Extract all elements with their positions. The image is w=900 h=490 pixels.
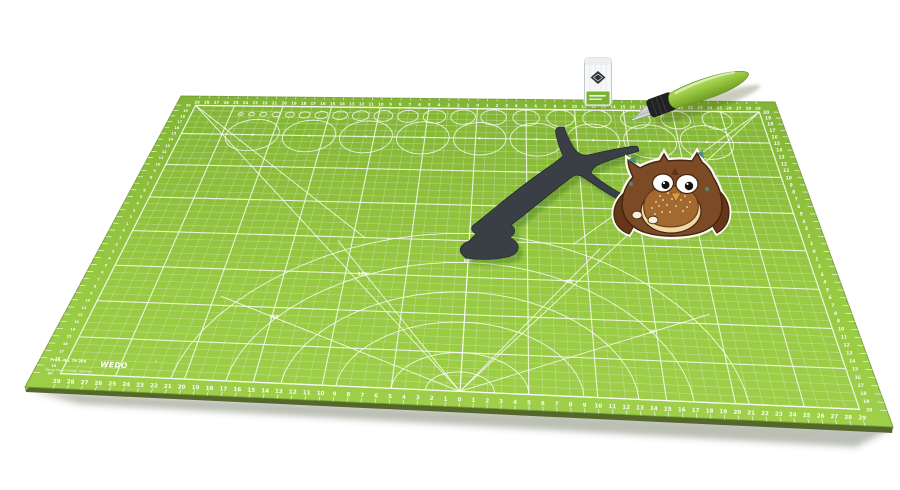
ruler-number: 24	[243, 100, 249, 105]
ruler-number: 14	[650, 406, 658, 412]
owl-foot-left	[632, 211, 642, 219]
owl-pupil-left	[662, 181, 670, 189]
ruler-number: 19	[765, 116, 771, 122]
ruler-number: 15	[774, 141, 780, 147]
ruler-number: 3	[499, 399, 503, 405]
product-photo: 2929282827272626252524242323222221212020…	[0, 0, 900, 490]
ruler-number: 20	[178, 385, 186, 391]
ruler-number: 2	[818, 264, 821, 270]
ruler-number: 1	[486, 103, 489, 108]
scene-canvas: 2929282827272626252524242323222221212020…	[0, 0, 900, 490]
ruler-number: 18	[860, 391, 866, 397]
ruler-number: 16	[855, 375, 861, 381]
ruler-number: 3	[447, 102, 450, 107]
ruler-number: 16	[771, 134, 777, 140]
ruler-number: 12	[781, 161, 787, 167]
ruler-number: 12	[843, 343, 849, 349]
ruler-number: 22	[262, 100, 268, 105]
ruler-number: 2	[457, 102, 460, 107]
ruler-number: 9	[332, 392, 336, 398]
ruler-number: 19	[863, 399, 869, 405]
ruler-number: 15	[171, 132, 176, 136]
ruler-number: 19	[291, 101, 297, 106]
ruler-number: 13	[778, 154, 784, 160]
ruler-number: 18	[205, 386, 213, 392]
ruler-number: 3	[821, 272, 824, 278]
ruler-number: 7	[795, 197, 798, 203]
ruler-number: 1	[467, 103, 470, 108]
ruler-number: 28	[67, 379, 75, 385]
ruler-number: 15	[664, 407, 672, 413]
ruler-number: 8	[792, 190, 795, 196]
ruler-number: 19	[719, 409, 727, 415]
ruler-number: 13	[636, 405, 644, 411]
ruler-number: 5	[388, 394, 392, 400]
ruler-number: 18	[301, 101, 307, 106]
ruler-number: 11	[841, 335, 847, 341]
ruler-number: 10	[572, 104, 578, 109]
ruler-number: 6	[374, 393, 378, 399]
ruler-number: 6	[797, 204, 800, 210]
ruler-number: 1	[810, 241, 813, 247]
ruler-number: 28	[204, 100, 210, 105]
ruler-number: 23	[136, 383, 144, 389]
ruler-number: 7	[544, 103, 547, 108]
ruler-number: 27	[830, 414, 838, 420]
ruler-number: 11	[303, 390, 311, 396]
ruler-number: 10	[317, 391, 325, 397]
ruler-number: 0	[457, 397, 461, 403]
ruler-number: 12	[622, 405, 630, 411]
ruler-number: 5	[428, 102, 431, 107]
ruler-number: 20	[763, 110, 769, 116]
angle-label: 150°	[269, 315, 280, 321]
ruler-number: 4	[515, 103, 518, 108]
ruler-number: 0	[476, 103, 479, 108]
ruler-number: 20	[186, 104, 191, 108]
ruler-number: 18	[767, 122, 773, 128]
ruler-number: 15	[330, 101, 336, 106]
ruler-number: 18	[705, 409, 713, 415]
ruler-number: 17	[310, 101, 316, 106]
ruler-number: 13	[275, 389, 283, 395]
angle-label: 120°	[358, 272, 369, 278]
ruler-number: 17	[769, 128, 775, 134]
ruler-number: 14	[261, 388, 269, 394]
owl-foot-right	[648, 216, 658, 224]
ruler-number: 20	[48, 371, 53, 375]
ruler-number: 3	[416, 395, 420, 401]
ruler-number: 16	[174, 126, 179, 130]
ruler-number: 12	[162, 150, 167, 154]
ruler-number: 14	[168, 138, 173, 142]
ruler-number: 5	[527, 400, 531, 406]
ruler-number: 29	[858, 415, 866, 421]
ruler-number: 16	[678, 407, 686, 413]
ruler-number: 2	[430, 396, 434, 402]
ruler-number: 21	[272, 100, 278, 105]
blade-case-label-line2	[589, 99, 602, 100]
ruler-number: 21	[747, 410, 755, 416]
ruler-number: 19	[192, 385, 200, 391]
ruler-number: 5	[525, 103, 528, 108]
ruler-number: 7	[360, 393, 364, 399]
ruler-number: 4	[438, 102, 441, 107]
ruler-number: 8	[399, 102, 402, 107]
ruler-number: 10	[155, 163, 160, 167]
ruler-number: 25	[233, 100, 239, 105]
ruler-number: 29	[755, 106, 761, 111]
ruler-number: 27	[736, 106, 742, 111]
ruler-number: 9	[790, 182, 793, 188]
cutting-mat: 2929282827272626252524242323222221212020…	[25, 96, 893, 447]
ruler-number: 9	[837, 319, 840, 325]
ruler-number: 13	[74, 320, 79, 324]
ruler-number: 14	[849, 359, 855, 365]
ruler-number: 1	[471, 398, 475, 404]
ruler-number: 4	[402, 395, 406, 401]
blade-case-cap	[585, 58, 612, 65]
ruler-number: 12	[78, 313, 83, 317]
ruler-number: 16	[233, 387, 241, 393]
ruler-number: 11	[368, 101, 374, 106]
ruler-number: 19	[183, 109, 188, 113]
ruler-number: 8	[834, 311, 837, 317]
ruler-number: 10	[838, 327, 844, 333]
ruler-number: 14	[70, 327, 75, 331]
ruler-number: 11	[608, 404, 616, 410]
ruler-number: 7	[409, 102, 412, 107]
ruler-number: 17	[219, 386, 227, 392]
owl-eye-glint-right	[686, 183, 688, 185]
ruler-number: 16	[630, 104, 636, 109]
angle-label: 30°	[649, 329, 657, 335]
blade-case-label-line1	[589, 95, 606, 97]
ruler-number: 29	[194, 100, 200, 105]
ruler-number: 11	[783, 168, 789, 174]
ruler-number: 15	[67, 335, 72, 339]
ruler-number: 14	[339, 101, 345, 106]
owl-pupil-right	[685, 182, 693, 190]
ruler-number: 17	[857, 383, 863, 389]
ruler-number: 1	[815, 256, 818, 262]
ruler-number: 6	[534, 103, 537, 108]
ruler-number: 20	[733, 410, 741, 416]
ruler-number: 20	[866, 407, 872, 413]
ruler-number: 0	[813, 249, 816, 255]
ruler-number: 23	[775, 412, 783, 418]
ruler-number: 10	[786, 175, 792, 181]
ruler-number: 11	[81, 306, 86, 310]
owl-cheek-accent-right	[705, 187, 709, 191]
owl-eye-glint-left	[663, 182, 665, 184]
ruler-number: 10	[594, 403, 602, 409]
ruler-number: 29	[53, 379, 61, 385]
ruler-number: 20	[281, 100, 287, 105]
ruler-number: 26	[94, 381, 102, 387]
ruler-number: 27	[80, 380, 88, 386]
ruler-number: 17	[177, 120, 182, 124]
ruler-number: 21	[164, 384, 172, 390]
ruler-number: 15	[247, 388, 255, 394]
ruler-number: 13	[846, 351, 852, 357]
ruler-number: 18	[180, 114, 185, 118]
mat-brand-logo: WEDO	[100, 360, 128, 370]
blade-case	[584, 58, 612, 110]
ruler-number: 26	[223, 100, 229, 105]
ruler-number: 28	[746, 106, 752, 111]
ruler-number: 24	[122, 382, 130, 388]
ruler-number: 8	[568, 402, 572, 408]
ruler-number: 5	[826, 287, 829, 293]
ruler-number: 16	[320, 101, 326, 106]
ruler-number: 23	[252, 100, 258, 105]
ruler-number: 10	[85, 299, 90, 303]
ruler-number: 27	[214, 100, 220, 105]
ruler-number: 25	[803, 413, 811, 419]
ruler-number: 12	[359, 101, 365, 106]
ruler-number: 13	[165, 144, 170, 148]
ruler-number: 6	[541, 401, 545, 407]
blade-case-label	[587, 92, 610, 105]
ruler-number: 17	[692, 408, 700, 414]
ruler-number: 22	[761, 411, 769, 417]
ruler-number: 13	[349, 101, 355, 106]
ruler-number: 1	[443, 397, 447, 403]
ruler-number: 3	[805, 226, 808, 232]
ruler-number: 2	[496, 103, 499, 108]
ruler-number: 6	[418, 102, 421, 107]
owl-cheek-accent-left	[629, 182, 633, 186]
ruler-number: 16	[63, 342, 68, 346]
angle-label: 60°	[566, 279, 574, 285]
ruler-number: 4	[823, 280, 826, 286]
ruler-number: 2	[485, 399, 489, 405]
ruler-number: 26	[726, 105, 732, 110]
ruler-number: 26	[817, 414, 825, 420]
ruler-number: 7	[831, 303, 834, 309]
ruler-number: 15	[620, 104, 626, 109]
ruler-number: 9	[389, 102, 392, 107]
ruler-number: 17	[59, 349, 64, 353]
ruler-number: 4	[802, 219, 805, 225]
ruler-number: 12	[289, 390, 297, 396]
ruler-number: 11	[159, 156, 164, 160]
ruler-number: 15	[852, 367, 858, 373]
ruler-number: 7	[555, 402, 559, 408]
ruler-number: 24	[789, 412, 797, 418]
ruler-number: 10	[378, 102, 384, 107]
ruler-number: 25	[108, 381, 116, 387]
ruler-number: 5	[800, 211, 803, 217]
ruler-number: 9	[563, 104, 566, 109]
ruler-number: 9	[582, 403, 586, 409]
ruler-number: 4	[513, 400, 517, 406]
ruler-number: 28	[844, 415, 852, 421]
ruler-number: 3	[505, 103, 508, 108]
ruler-number: 2	[807, 234, 810, 240]
ruler-number: 8	[554, 104, 557, 109]
ruler-number: 14	[776, 148, 782, 154]
ruler-number: 22	[150, 383, 158, 389]
ruler-number: 6	[829, 295, 832, 301]
ruler-number: 8	[346, 392, 350, 398]
